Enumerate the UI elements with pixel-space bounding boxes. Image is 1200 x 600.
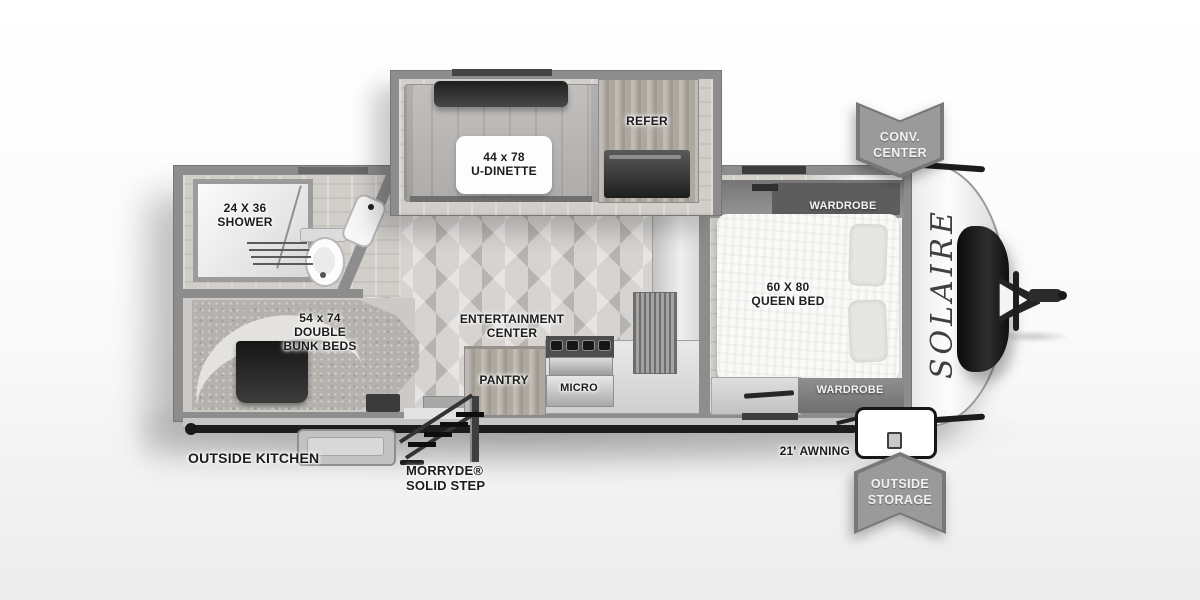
step-tread <box>424 432 452 437</box>
pillow <box>848 299 888 362</box>
entry-steps <box>400 394 484 468</box>
brand-label: SOLAIRE <box>926 207 961 378</box>
burner <box>598 340 611 351</box>
dinette-table <box>434 81 568 107</box>
dark-console-item <box>366 394 400 412</box>
refer-label: REFER <box>606 114 688 128</box>
louvered-cabinet <box>633 292 677 374</box>
faucet-dot <box>368 204 374 210</box>
dinette-name: U-DINETTE <box>458 164 550 178</box>
burner <box>566 340 579 351</box>
refer-fridge <box>604 150 690 198</box>
shower-size: 24 X 36 <box>194 201 296 215</box>
bunk-label: 54 x 74 DOUBLE BUNK BEDS <box>258 311 382 353</box>
dinette-size: 44 x 78 <box>458 150 550 164</box>
micro-label: MICRO <box>548 382 610 395</box>
dinette-bench-base <box>410 196 592 202</box>
hitch-coupler-tip <box>1058 291 1067 300</box>
shower-shelf-lines <box>247 242 307 268</box>
bunk-size: 54 x 74 <box>258 311 382 325</box>
entertainment-line1: ENTERTAINMENT <box>444 312 580 326</box>
dinette-label: 44 x 78 U-DINETTE <box>458 150 550 178</box>
bathroom-bottom-wall <box>183 289 363 298</box>
bedroom-window-bottom <box>742 413 798 420</box>
bunk-name-line1: DOUBLE <box>258 325 382 339</box>
burner <box>550 340 563 351</box>
shower-name: SHOWER <box>194 215 296 229</box>
toilet-flush-dot <box>320 272 326 278</box>
main-window-left <box>298 167 368 174</box>
slideout-window <box>452 69 552 76</box>
wardrobe-bottom-label: WARDROBE <box>788 384 912 397</box>
awning-bar <box>189 425 857 433</box>
queen-bed-size: 60 X 80 <box>730 280 846 294</box>
shower-label: 24 X 36 SHOWER <box>194 201 296 229</box>
pantry-label: PANTRY <box>466 373 542 387</box>
toilet-seat <box>313 247 335 275</box>
bedroom-window-top <box>742 166 806 174</box>
outside-storage-line1: OUTSIDE <box>854 476 946 492</box>
morryde-step-label: MORRYDE® SOLID STEP <box>406 463 516 494</box>
step-brand: MORRYDE® <box>406 463 516 478</box>
bedroom-vent <box>752 184 778 191</box>
queen-bed-name: QUEEN BED <box>730 294 846 308</box>
queen-bed-label: 60 X 80 QUEEN BED <box>730 280 846 308</box>
refer-handle <box>609 155 681 159</box>
bunk-name-line2: BUNK BEDS <box>258 339 382 353</box>
entertainment-line2: CENTER <box>444 326 580 340</box>
awning-bar-endcap <box>185 423 197 435</box>
step-name: SOLID STEP <box>406 478 516 493</box>
hitch-jack <box>1013 271 1019 331</box>
conv-center-line1: CONV. <box>856 129 944 145</box>
conv-center-line2: CENTER <box>856 145 944 161</box>
outside-storage-line2: STORAGE <box>854 492 946 508</box>
oven-front <box>549 357 613 376</box>
step-tread <box>408 442 436 447</box>
wardrobe-top-label: WARDROBE <box>781 200 905 213</box>
storage-door-handle <box>887 432 902 449</box>
conv-center-badge: CONV. CENTER <box>856 102 944 178</box>
step-tread <box>440 422 468 427</box>
entertainment-label: ENTERTAINMENT CENTER <box>444 312 580 340</box>
floorplan-stage: SOLAIRE <box>0 0 1200 600</box>
outside-storage-badge: OUTSIDE STORAGE <box>854 452 946 534</box>
step-tread <box>456 412 484 417</box>
burner <box>582 340 595 351</box>
outside-storage-badge-text: OUTSIDE STORAGE <box>854 476 946 509</box>
outside-kitchen-label: OUTSIDE KITCHEN <box>188 450 348 467</box>
conv-center-badge-text: CONV. CENTER <box>856 129 944 162</box>
pillow <box>848 223 888 286</box>
awning-label: 21' AWNING <box>770 444 850 458</box>
